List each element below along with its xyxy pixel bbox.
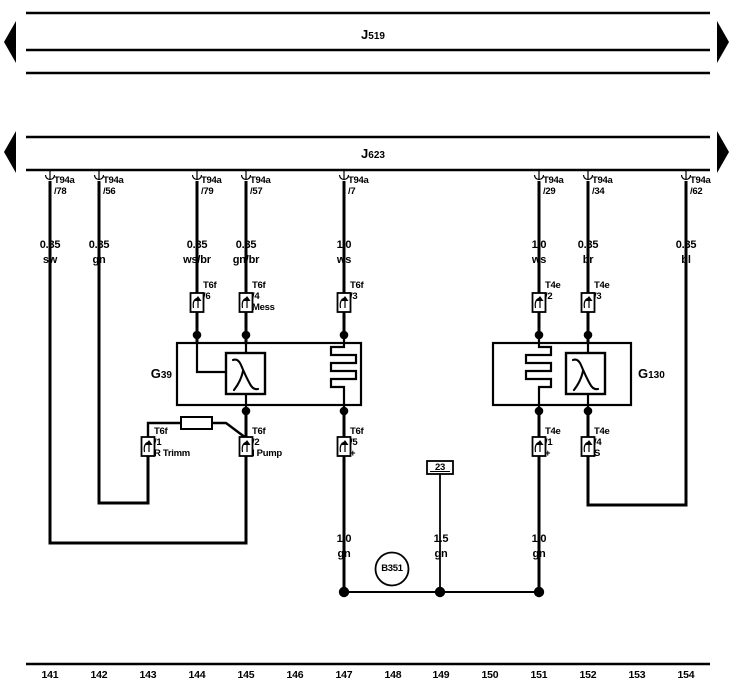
- g130-box: [493, 343, 631, 405]
- track-number: 141: [30, 669, 70, 681]
- wire-label: 1.0gn: [509, 532, 569, 562]
- wire-label: 1.0gn: [314, 532, 374, 562]
- ground-point-label: 23: [427, 462, 453, 473]
- plug-label: T6f/3: [350, 280, 363, 313]
- component-label-g39: G39: [126, 366, 172, 381]
- track-number: 151: [519, 669, 559, 681]
- bus-lines: [26, 13, 710, 664]
- plug-label: T4e/4S: [594, 426, 609, 459]
- track-number: 144: [177, 669, 217, 681]
- plug-label: T6f/2I Pump: [252, 426, 282, 459]
- plug-label: T6f/1R Trimm: [154, 426, 190, 459]
- track-number: 154: [666, 669, 706, 681]
- wire-label: 0.35gn/br: [216, 238, 276, 268]
- connector-label: T94a/7: [348, 175, 368, 197]
- bus-label-j623: J623: [343, 146, 403, 161]
- b351-label: B351: [370, 563, 414, 574]
- arrow-left-icon: [4, 21, 16, 63]
- wire-label: 1.0ws: [314, 238, 374, 268]
- connector-label: T94a/57: [250, 175, 270, 197]
- heater-element-icon: [526, 337, 551, 411]
- plug-label: T4e/2: [545, 280, 560, 313]
- track-number: 146: [275, 669, 315, 681]
- connector-label: T94a/62: [690, 175, 710, 197]
- diagram-lineart: [0, 0, 733, 691]
- track-number: 143: [128, 669, 168, 681]
- bus-label-j519: J519: [343, 27, 403, 42]
- lambda-symbol-icons: [233, 360, 598, 390]
- track-number: 147: [324, 669, 364, 681]
- arrow-right-icon: [717, 131, 729, 173]
- wire-label: 1.5gn: [411, 532, 471, 562]
- track-number: 142: [79, 669, 119, 681]
- track-number: 145: [226, 669, 266, 681]
- wire-label: 0.35br: [558, 238, 618, 268]
- heater-element-icon: [331, 337, 356, 411]
- track-number: 150: [470, 669, 510, 681]
- connector-label: T94a/79: [201, 175, 221, 197]
- track-number: 153: [617, 669, 657, 681]
- wire-label: 0.35gn: [69, 238, 129, 268]
- plug-label: T6f/6: [203, 280, 216, 313]
- g39-box: [177, 343, 361, 405]
- plug-label: T4e/1+: [545, 426, 560, 459]
- wiring-diagram-page: J519 J623 T94a/78 T94a/56 T94a/79 T94a/5…: [0, 0, 733, 691]
- connector-label: T94a/78: [54, 175, 74, 197]
- track-number: 149: [421, 669, 461, 681]
- track-number: 148: [373, 669, 413, 681]
- connector-label: T94a/29: [543, 175, 563, 197]
- plug-label: T4e/3: [594, 280, 609, 313]
- track-number: 152: [568, 669, 608, 681]
- arrow-left-icon: [4, 131, 16, 173]
- connector-label: T94a/34: [592, 175, 612, 197]
- connector-label: T94a/56: [103, 175, 123, 197]
- plug-label: T6f/5+: [350, 426, 363, 459]
- wire-label: 0.35bl: [656, 238, 716, 268]
- component-label-g130: G130: [638, 366, 665, 381]
- arrow-right-icon: [717, 21, 729, 63]
- plug-label: T6f/4Mess: [252, 280, 275, 313]
